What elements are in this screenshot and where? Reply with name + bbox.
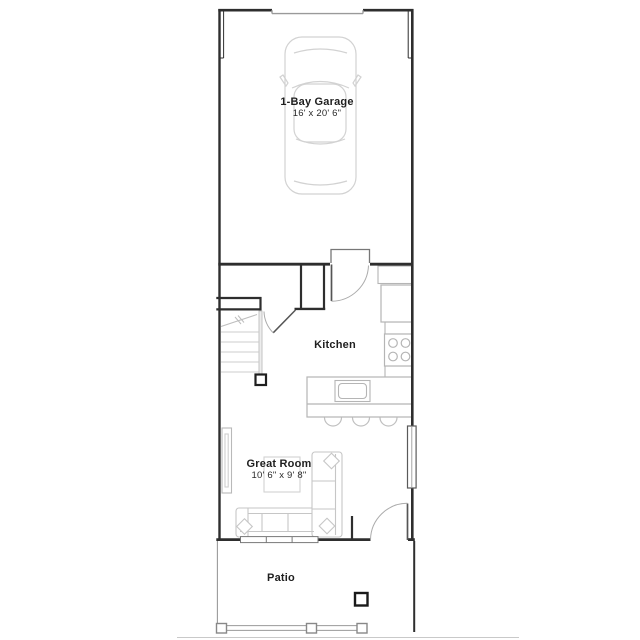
patio-door: [371, 503, 408, 540]
closet-door: [264, 310, 296, 333]
staircase: [221, 311, 262, 378]
garage-name: 1-Bay Garage: [280, 96, 353, 108]
refrigerator-icon: [381, 285, 412, 322]
floor-plan: 1-Bay Garage 16' x 20' 6" Kitchen Great …: [0, 0, 640, 640]
garage-label: 1-Bay Garage 16' x 20' 6": [280, 96, 353, 119]
patio-label: Patio: [267, 572, 295, 584]
kitchen-name: Kitchen: [314, 339, 356, 351]
garage-dimensions: 16' x 20' 6": [280, 108, 353, 119]
tv-console: [222, 428, 232, 493]
great-room-label: Great Room 10' 6" x 9' 8": [247, 458, 312, 481]
garage-door: [272, 10, 363, 13]
patio-name: Patio: [267, 572, 295, 584]
newel-post: [256, 375, 267, 386]
kitchen-label: Kitchen: [314, 339, 356, 351]
rear-window-band: [241, 537, 319, 543]
sink-icon: [335, 381, 370, 402]
stair-direction-arrow: [221, 315, 257, 327]
structural-post: [355, 593, 368, 606]
garage-entry-door: [331, 250, 370, 302]
great-room-side-window: [408, 426, 417, 488]
patio-railing: [217, 624, 368, 634]
patio-outline: [217, 541, 414, 632]
stove-icon: [385, 334, 413, 366]
bar-stools: [325, 418, 398, 427]
great-room-name: Great Room: [247, 458, 312, 470]
great-room-dimensions: 10' 6" x 9' 8": [247, 470, 312, 481]
